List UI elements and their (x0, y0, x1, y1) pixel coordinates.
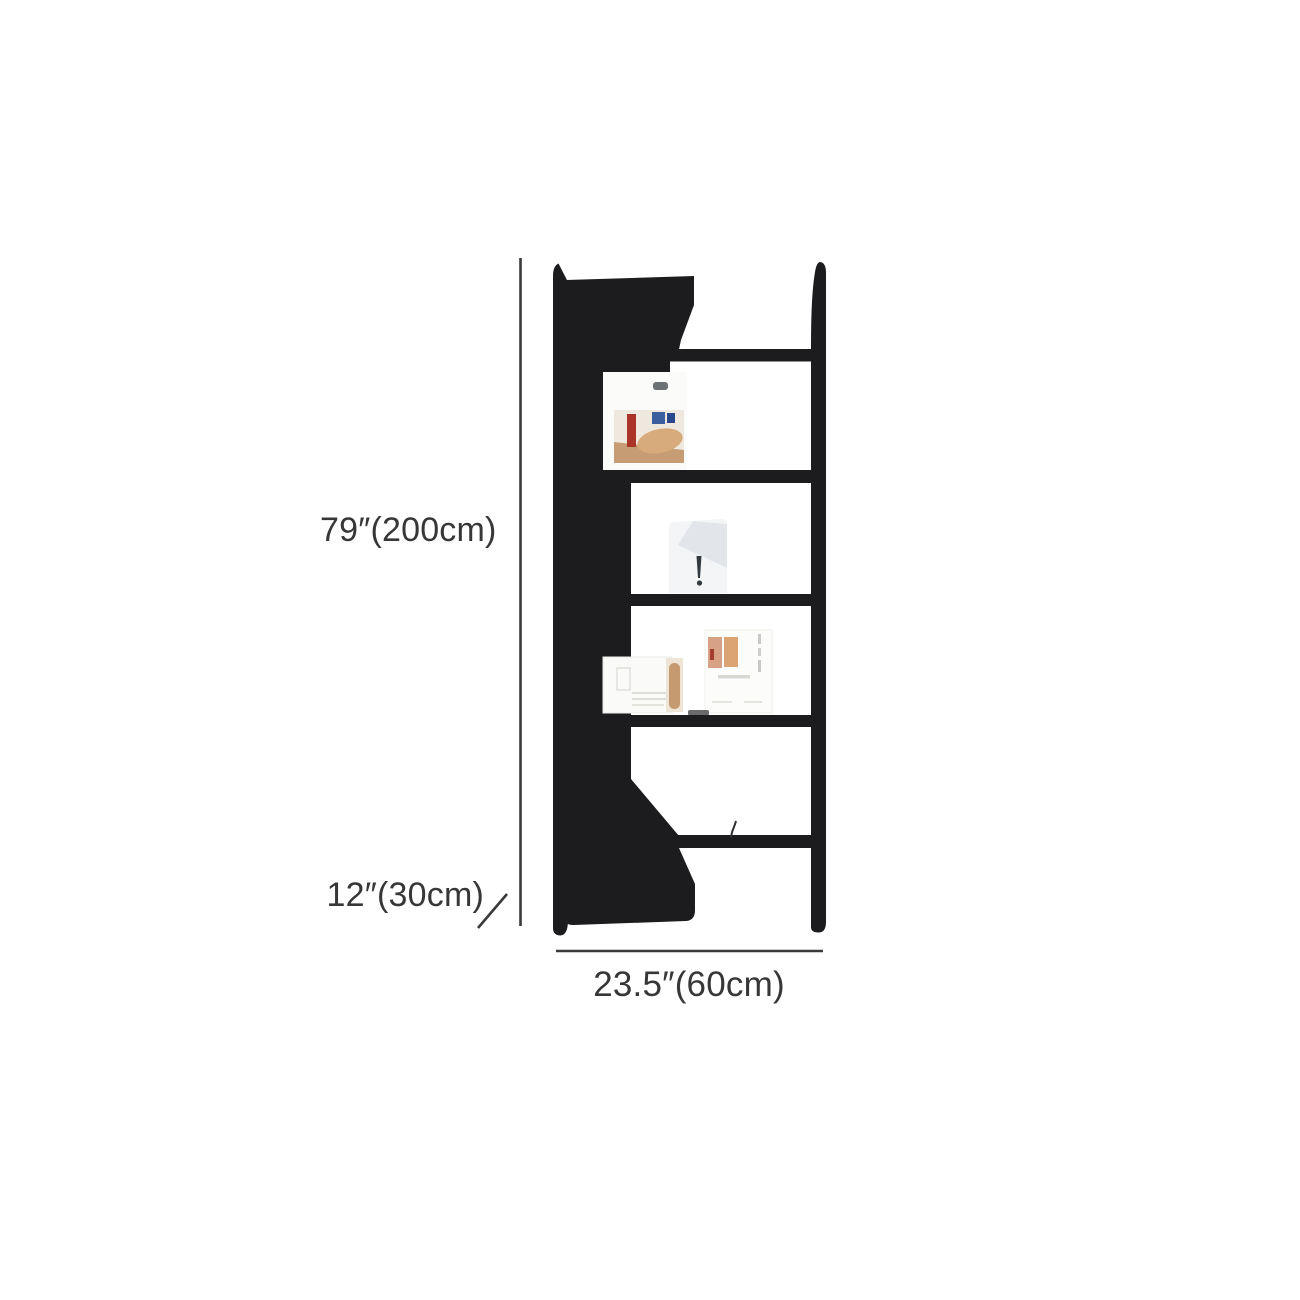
envelope-display-item (669, 519, 727, 593)
right-card-shadow (688, 710, 709, 716)
magazine-photo-blue-patch-2 (667, 413, 675, 423)
card-display-item-left (603, 657, 683, 713)
bookshelf-dimension-diagram (0, 0, 1300, 1300)
right-card-photo-2 (724, 637, 738, 667)
width-dimension-label: 23.5″(60cm) (554, 964, 824, 1006)
bookshelf-illustration (553, 262, 826, 936)
left-card-text-line-3 (632, 704, 664, 706)
product-dimension-image: 79″(200cm) 12″(30cm) 23.5″(60cm) (0, 0, 1300, 1300)
left-card-photo-figure (669, 663, 680, 709)
right-card-footer-line-1 (712, 701, 732, 703)
depth-dimension-label: 12″(30cm) (320, 874, 484, 916)
shelf-board-4 (564, 715, 826, 727)
height-dimension-label: 79″(200cm) (320, 509, 496, 551)
right-card-footer-line-2 (744, 701, 762, 703)
card-display-item-right (688, 630, 772, 716)
magazine-display-item (603, 372, 687, 470)
left-card-text-line-1 (632, 692, 668, 694)
envelope-exclamation-dot (697, 580, 702, 585)
magazine-photo-blue-patch-1 (652, 412, 665, 424)
magazine-photo-red-stripe (627, 414, 636, 447)
shelf-board-3 (564, 594, 826, 606)
shelf-board-2 (564, 470, 826, 483)
right-card-side-text-3 (758, 660, 761, 672)
right-card-side-text-1 (758, 634, 761, 644)
right-card-side-text-2 (758, 648, 761, 656)
shelf-board-1 (564, 349, 826, 362)
right-card-photo-1-accent (710, 649, 714, 660)
bookshelf-right-post (811, 262, 826, 933)
shelf-board-5 (564, 835, 826, 848)
right-card-title-line (718, 675, 750, 679)
magazine-logo-mark (653, 382, 668, 390)
